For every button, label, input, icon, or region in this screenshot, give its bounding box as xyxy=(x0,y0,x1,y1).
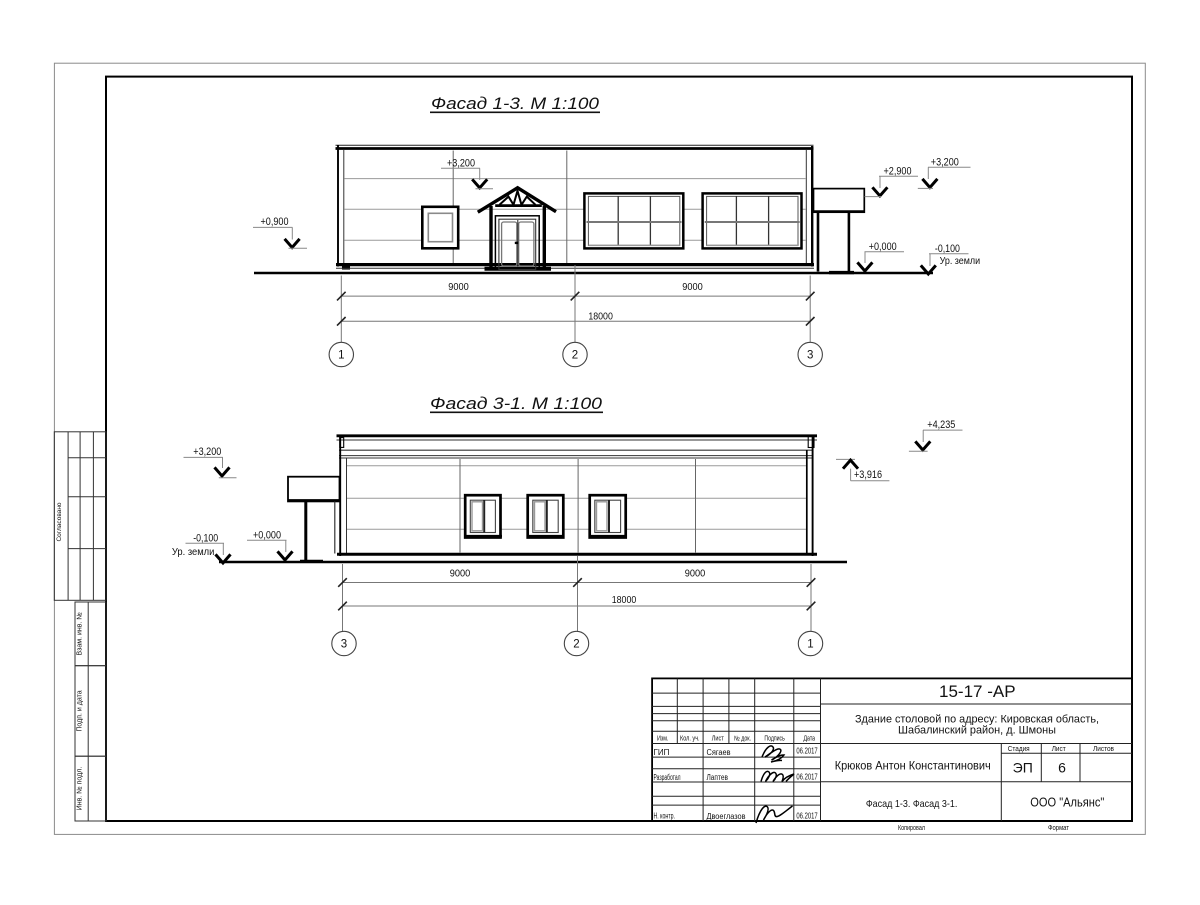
svg-text:№ док.: № док. xyxy=(734,736,751,743)
svg-text:06.2017: 06.2017 xyxy=(796,772,818,781)
svg-text:Взам. инв. №: Взам. инв. № xyxy=(77,612,84,655)
svg-text:9000: 9000 xyxy=(448,282,469,293)
svg-text:06.2017: 06.2017 xyxy=(796,811,818,820)
svg-text:Листов: Листов xyxy=(1093,746,1114,753)
svg-text:9000: 9000 xyxy=(450,569,471,580)
svg-text:Н. контр.: Н. контр. xyxy=(654,812,676,821)
svg-text:6: 6 xyxy=(1058,760,1066,776)
svg-text:Лист: Лист xyxy=(1052,746,1067,753)
svg-text:18000: 18000 xyxy=(612,595,637,606)
svg-text:+3,200: +3,200 xyxy=(931,156,959,168)
svg-text:+3,200: +3,200 xyxy=(193,446,221,458)
svg-text:+3,916: +3,916 xyxy=(854,469,882,481)
svg-text:Сягаев: Сягаев xyxy=(707,748,731,757)
svg-text:Крюков Антон Константинович: Крюков Антон Константинович xyxy=(835,759,991,773)
svg-text:2: 2 xyxy=(572,350,578,362)
svg-text:ЭП: ЭП xyxy=(1013,760,1033,776)
svg-text:Ур. земли: Ур. земли xyxy=(940,256,981,267)
svg-text:3: 3 xyxy=(341,639,347,651)
svg-text:+2,900: +2,900 xyxy=(884,165,912,177)
svg-text:Подпись: Подпись xyxy=(764,736,785,743)
svg-text:Фасад 3-1. М 1:100: Фасад 3-1. М 1:100 xyxy=(430,394,603,413)
svg-text:1: 1 xyxy=(807,639,813,651)
svg-text:+0,000: +0,000 xyxy=(253,529,281,541)
svg-text:Ур. земли: Ур. земли xyxy=(172,547,215,558)
svg-text:18000: 18000 xyxy=(588,311,613,322)
svg-text:Согласовано: Согласовано xyxy=(56,502,63,541)
svg-text:Кол. уч.: Кол. уч. xyxy=(680,736,700,743)
svg-text:Лист: Лист xyxy=(712,736,725,743)
svg-text:Стадия: Стадия xyxy=(1008,746,1030,753)
svg-text:1: 1 xyxy=(338,350,344,362)
svg-text:ГИП: ГИП xyxy=(654,748,670,757)
svg-text:15-17 -АР: 15-17 -АР xyxy=(939,682,1016,701)
svg-text:3: 3 xyxy=(807,350,813,362)
svg-text:06.2017: 06.2017 xyxy=(796,747,818,756)
svg-text:9000: 9000 xyxy=(685,569,706,580)
svg-text:Двоеглазов: Двоеглазов xyxy=(707,812,746,821)
svg-text:ООО "Альянс": ООО "Альянс" xyxy=(1030,796,1104,810)
svg-text:9000: 9000 xyxy=(682,282,703,293)
svg-text:Формат: Формат xyxy=(1048,825,1070,832)
svg-text:2: 2 xyxy=(573,639,579,651)
svg-text:Фасад 1-3. Фасад 3-1.: Фасад 1-3. Фасад 3-1. xyxy=(866,798,958,810)
svg-text:-0,100: -0,100 xyxy=(193,532,218,544)
svg-text:Подп. и дата: Подп. и дата xyxy=(77,690,84,731)
svg-text:+4,235: +4,235 xyxy=(927,419,955,431)
svg-text:Изм.: Изм. xyxy=(657,736,669,743)
svg-text:Фасад 1-3. М 1:100: Фасад 1-3. М 1:100 xyxy=(431,94,600,113)
svg-text:Разработал: Разработал xyxy=(654,773,681,782)
svg-text:+3,200: +3,200 xyxy=(447,157,475,169)
svg-text:Копировал: Копировал xyxy=(898,825,925,832)
svg-text:Лаптев: Лаптев xyxy=(707,773,729,782)
svg-text:Инв. № подл.: Инв. № подл. xyxy=(77,767,84,811)
svg-text:+0,900: +0,900 xyxy=(261,216,289,228)
svg-text:Дата: Дата xyxy=(804,736,816,743)
svg-text:Шабалинский район, д. Шмоны: Шабалинский район, д. Шмоны xyxy=(898,725,1056,737)
